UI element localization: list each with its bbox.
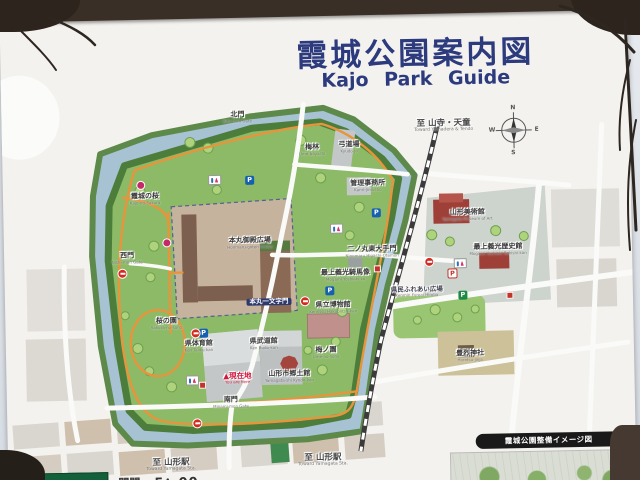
compass-e: E: [535, 126, 539, 133]
photo-of-park-sign: 霞城公園案内図 Kajo Park Guide N E S W 北門Kita-m…: [0, 0, 640, 480]
site-marker-icon: [374, 265, 381, 272]
history-museum-bldg: [479, 252, 509, 269]
toilet-icon: [454, 258, 467, 268]
site-marker-icon: [506, 292, 513, 299]
inset-title-pill: 霞城公園整備イメージ図: [476, 431, 622, 449]
photo-corner-frame-bottom-right: [610, 425, 640, 480]
site-marker-icon: [199, 382, 206, 389]
compass-s: S: [511, 149, 515, 156]
parking-icon-paid: P: [447, 268, 457, 278]
compass-w: W: [489, 127, 496, 134]
pref-museum-bldg: [307, 313, 349, 338]
parking-icon-green: P: [458, 291, 467, 300]
toilet-icon: [186, 375, 199, 385]
toilet-icon: [208, 175, 221, 185]
compass-rose: N E S W: [489, 106, 538, 155]
footer-gate-time: 5：00: [154, 471, 198, 480]
compass-n: N: [510, 104, 515, 111]
shrine-building: [458, 345, 474, 357]
toilet-icon: [330, 224, 343, 234]
parking-icon: P: [372, 208, 381, 217]
sign-board: 霞城公園案内図 Kajo Park Guide N E S W 北門Kita-m…: [0, 6, 636, 480]
west-blocks: [24, 268, 87, 401]
footer-gate-label: 開門: [118, 474, 140, 480]
parking-icon: P: [325, 286, 334, 295]
compass-graphic: [489, 106, 538, 155]
art-museum-bldg: [433, 199, 469, 224]
statue-plinth: [348, 257, 362, 267]
background-blob: [0, 75, 60, 161]
admin-bldg: [347, 177, 371, 195]
parking-icon: P: [245, 176, 254, 185]
inset-aerial-illustration: [450, 449, 637, 480]
